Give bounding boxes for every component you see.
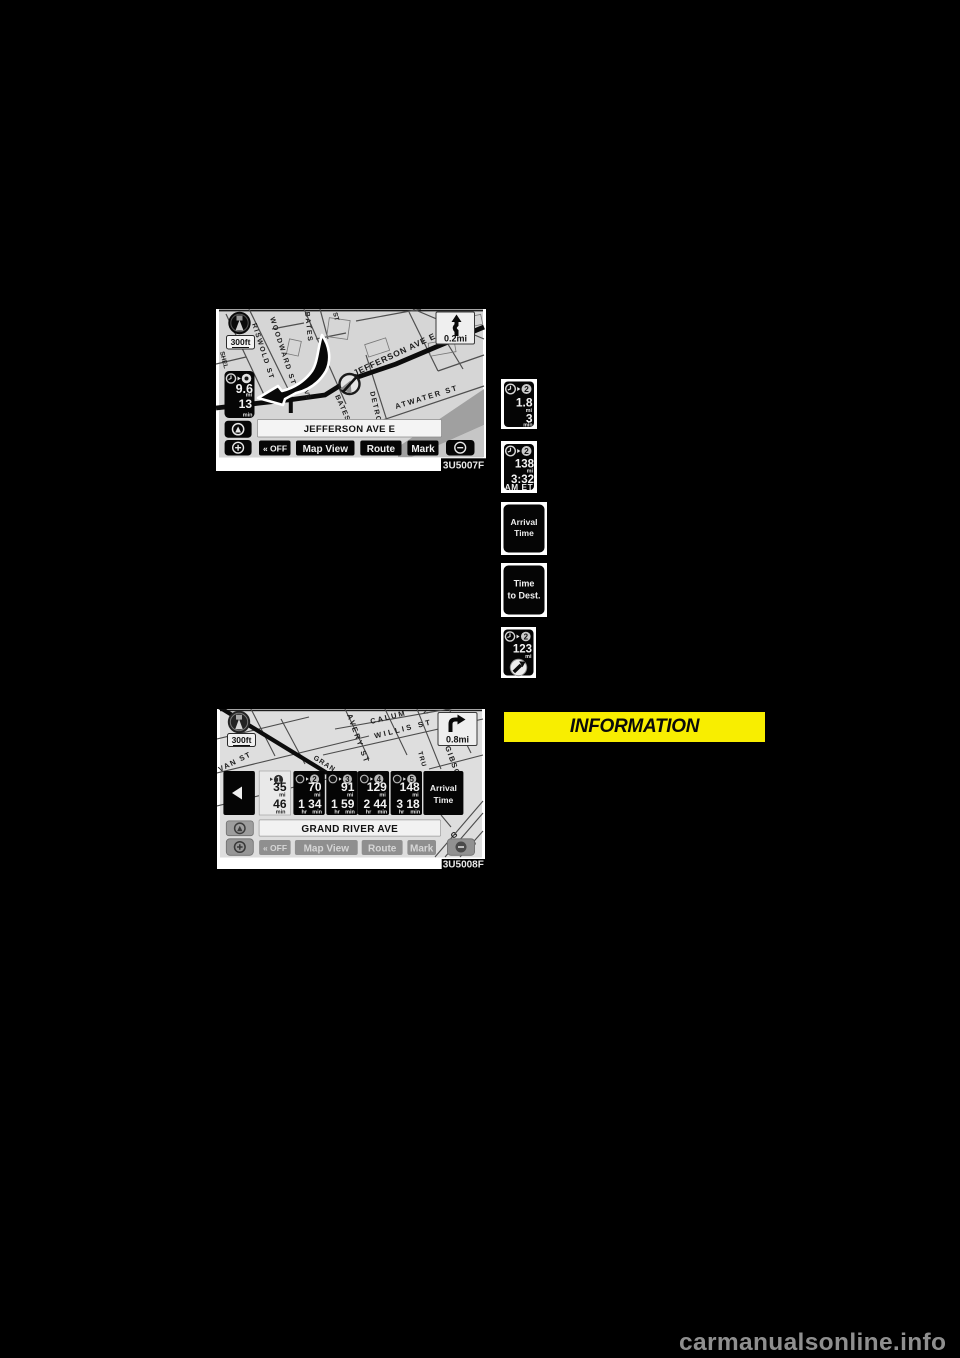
svg-text:2: 2 <box>524 632 529 641</box>
svg-text:300ft: 300ft <box>232 735 252 745</box>
svg-text:min: min <box>276 809 286 815</box>
svg-text:hr: hr <box>302 809 308 815</box>
svg-text:Arrival: Arrival <box>511 517 538 527</box>
svg-text:JEFFERSON AVE E: JEFFERSON AVE E <box>304 424 396 435</box>
svg-text:min: min <box>378 809 388 815</box>
svg-text:Time: Time <box>514 579 535 589</box>
svg-text:hr: hr <box>399 809 405 815</box>
svg-text:Time: Time <box>434 795 454 805</box>
svg-text:3U5007F: 3U5007F <box>443 460 484 471</box>
svg-text:AM ET: AM ET <box>505 483 533 492</box>
svg-text:min: min <box>523 423 532 429</box>
svg-text:Time: Time <box>514 528 534 538</box>
svg-text:Arrival: Arrival <box>430 783 457 793</box>
svg-text:Route: Route <box>368 843 397 854</box>
svg-text:13: 13 <box>239 397 253 411</box>
svg-text:2: 2 <box>524 446 529 456</box>
svg-text:Mark: Mark <box>410 843 434 854</box>
svg-text:hr: hr <box>366 809 372 815</box>
svg-text:to Dest.: to Dest. <box>507 591 540 601</box>
svg-text:300ft: 300ft <box>231 337 251 347</box>
svg-text:GRAND RIVER AVE: GRAND RIVER AVE <box>301 824 398 835</box>
svg-text:min: min <box>345 809 355 815</box>
svg-text:Mark: Mark <box>411 444 435 455</box>
svg-text:min: min <box>243 413 253 419</box>
svg-text:« OFF: « OFF <box>263 444 287 454</box>
svg-text:0.8mi: 0.8mi <box>446 735 469 745</box>
svg-text:2: 2 <box>524 384 529 394</box>
svg-text:Map View: Map View <box>304 843 350 854</box>
svg-text:Map View: Map View <box>303 444 349 455</box>
svg-text:3U5008F: 3U5008F <box>443 860 484 869</box>
svg-text:min: min <box>410 809 420 815</box>
svg-text:« OFF: « OFF <box>263 843 287 853</box>
svg-text:hr: hr <box>334 809 340 815</box>
svg-text:Route: Route <box>367 444 396 455</box>
svg-text:min: min <box>312 809 322 815</box>
svg-text:mi: mi <box>525 654 532 660</box>
svg-text:0.2mi: 0.2mi <box>444 334 467 344</box>
